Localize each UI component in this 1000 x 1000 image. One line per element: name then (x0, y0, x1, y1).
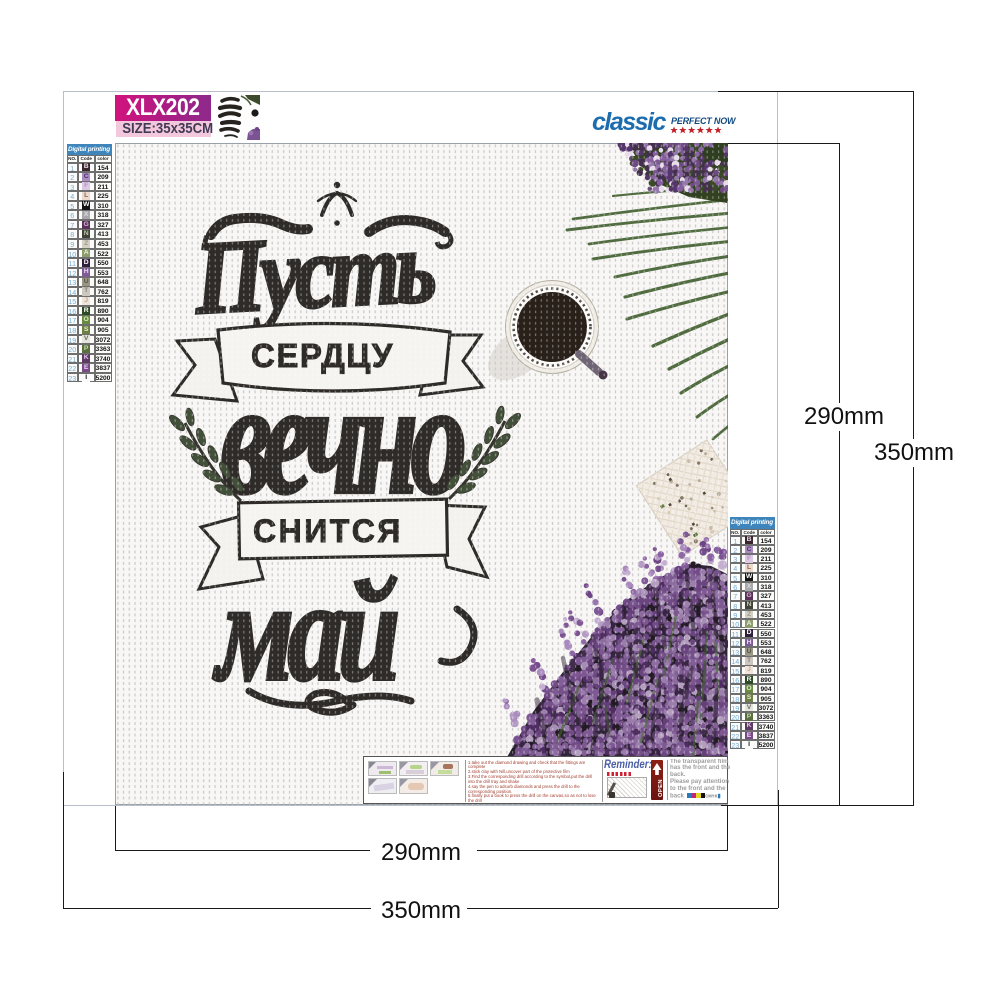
svg-text:OPEN: OPEN (658, 778, 663, 796)
